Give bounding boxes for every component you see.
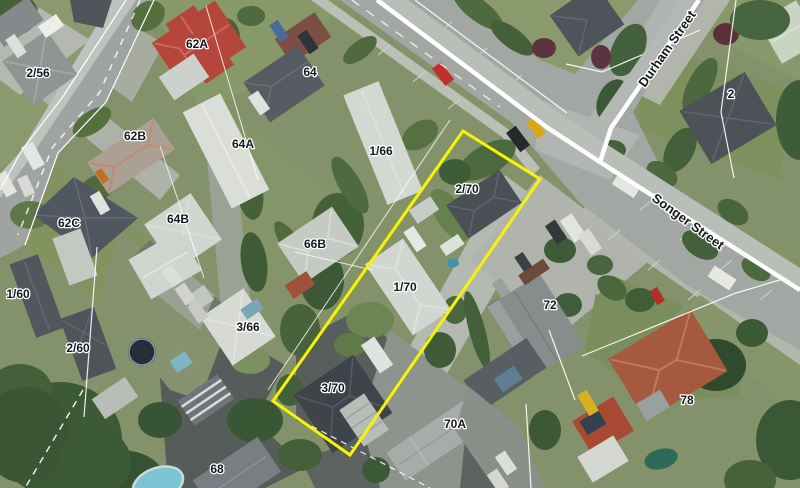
svg-text:78: 78 xyxy=(680,393,694,407)
svg-text:2/60: 2/60 xyxy=(66,341,90,355)
svg-text:2: 2 xyxy=(728,87,735,101)
svg-text:64B: 64B xyxy=(167,212,189,226)
svg-text:62A: 62A xyxy=(186,37,208,51)
svg-text:62C: 62C xyxy=(58,216,80,230)
svg-text:1/70: 1/70 xyxy=(393,280,417,294)
svg-text:66B: 66B xyxy=(304,237,326,251)
svg-text:2/56: 2/56 xyxy=(26,66,50,80)
svg-text:64A: 64A xyxy=(232,137,254,151)
svg-text:70A: 70A xyxy=(444,417,466,431)
svg-text:1/60: 1/60 xyxy=(6,287,30,301)
svg-text:64: 64 xyxy=(303,65,317,79)
svg-text:1/66: 1/66 xyxy=(369,144,393,158)
svg-text:62B: 62B xyxy=(124,129,146,143)
svg-text:68: 68 xyxy=(210,462,224,476)
svg-text:72: 72 xyxy=(543,298,557,312)
svg-text:2/70: 2/70 xyxy=(455,182,479,196)
svg-text:3/66: 3/66 xyxy=(236,320,260,334)
svg-text:3/70: 3/70 xyxy=(321,381,345,395)
